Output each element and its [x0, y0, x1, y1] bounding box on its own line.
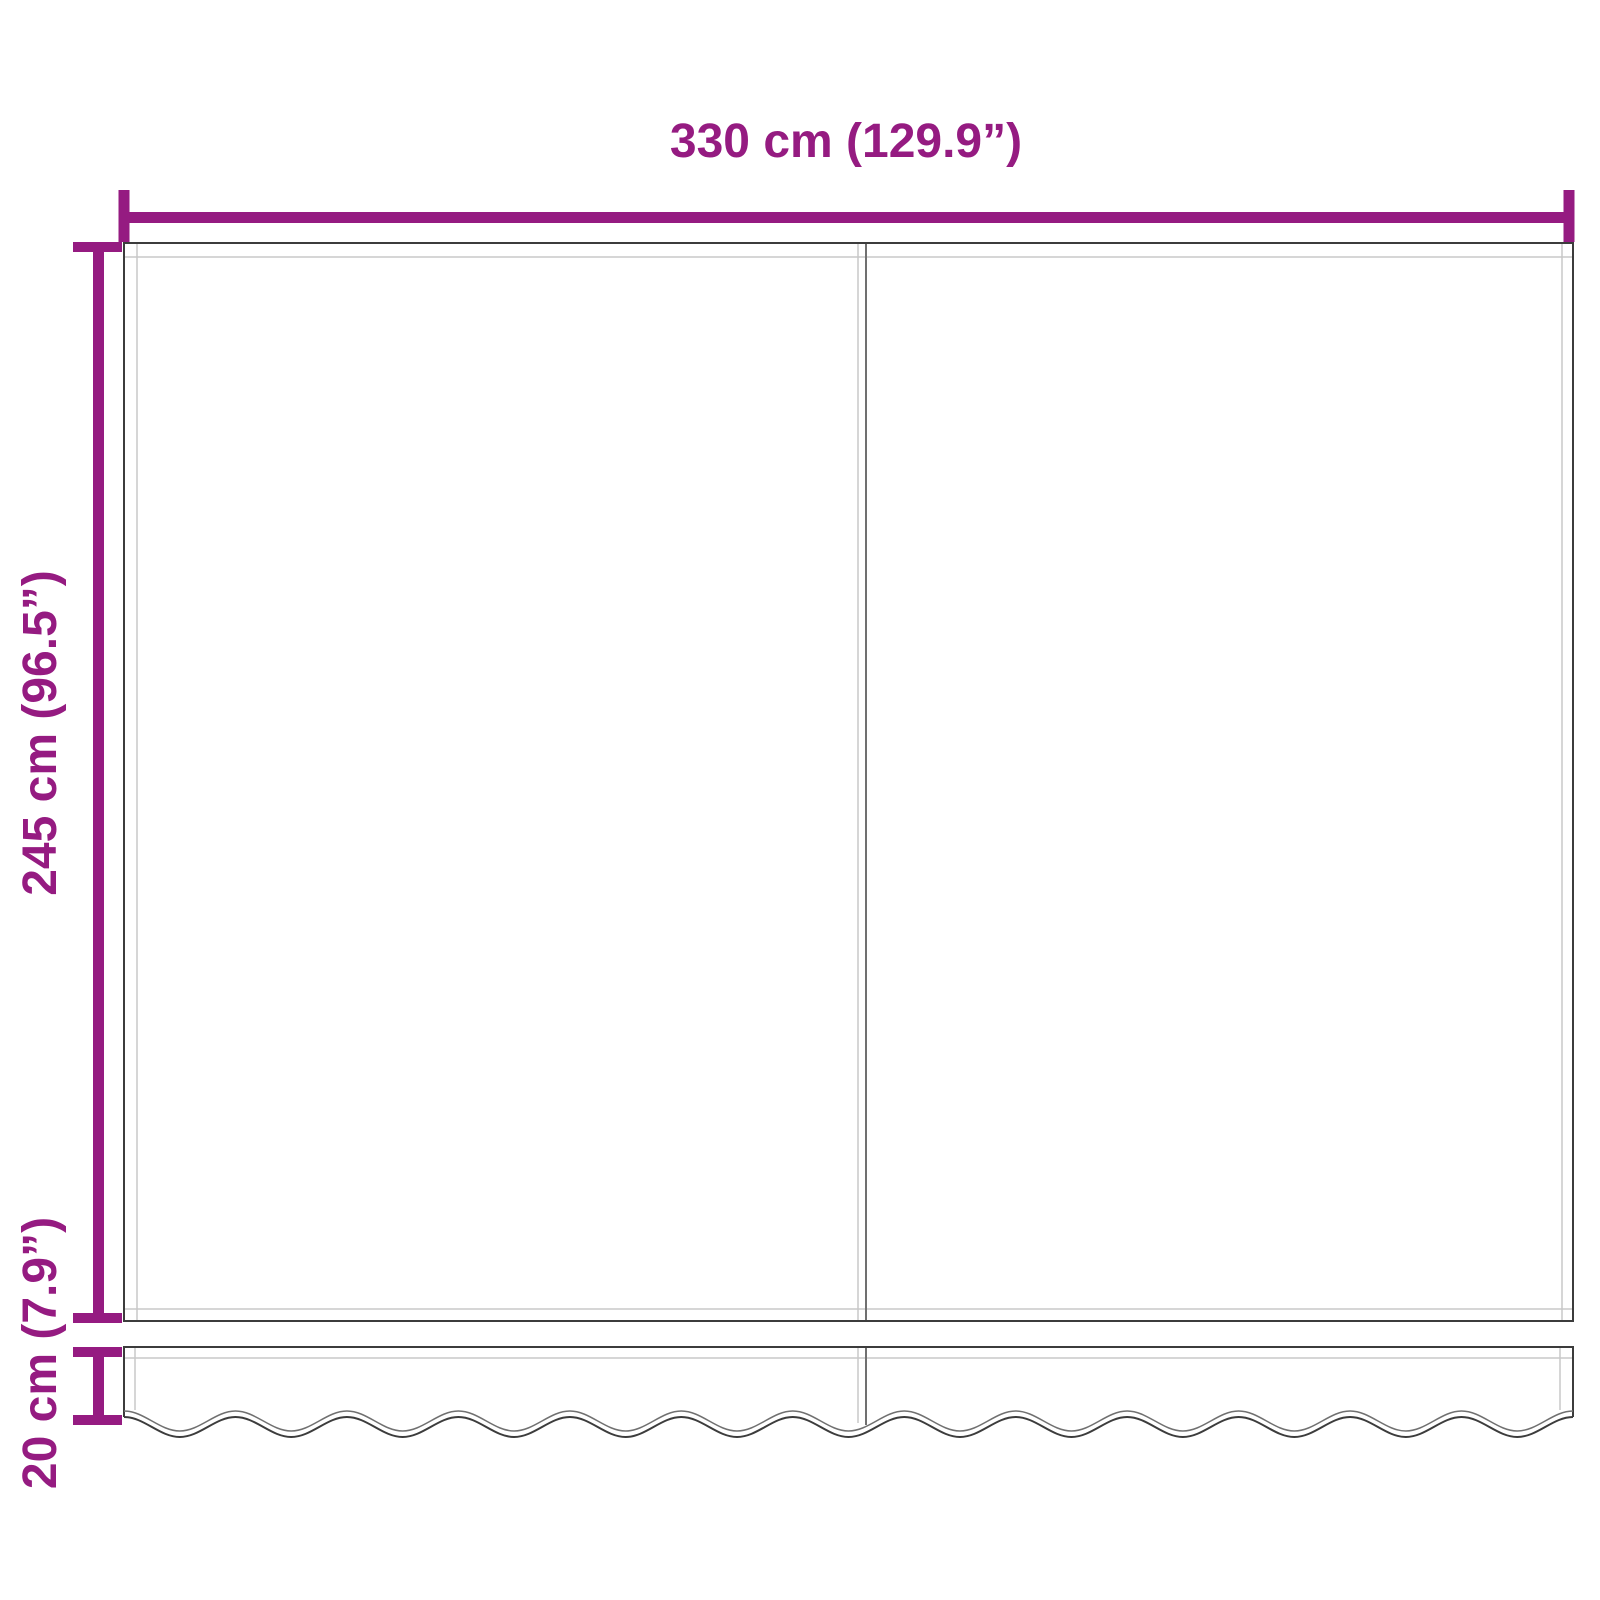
height-dimension-bottom-cap: [73, 1313, 122, 1323]
valance-dimension-top-cap: [73, 1347, 122, 1357]
fabric-panel-outline: [124, 243, 1573, 1321]
valance: [124, 1346, 1573, 1437]
valance-wave-bottom-edge: [124, 1417, 1573, 1437]
valance-dimension: [73, 1347, 122, 1425]
width-dimension-label: 330 cm (129.9”): [670, 118, 1022, 166]
valance-height-dimension-label: 20 cm (7.9”): [17, 1217, 65, 1489]
width-dimension: [119, 190, 1575, 242]
width-dimension-left-cap: [119, 190, 130, 242]
diagram-graphics: [0, 0, 1600, 1600]
valance-wave-upper-line: [124, 1411, 1573, 1431]
fabric-panel: [124, 243, 1573, 1321]
width-dimension-right-cap: [1564, 190, 1575, 242]
valance-dimension-bottom-cap: [73, 1415, 122, 1425]
height-dimension-line: [93, 247, 104, 1318]
valance-dimension-line: [93, 1352, 104, 1420]
height-dimension-top-cap: [73, 242, 122, 252]
width-dimension-line: [124, 212, 1569, 223]
awning-fabric-dimension-diagram: 330 cm (129.9”) 245 cm (96.5”) 20 cm (7.…: [0, 0, 1600, 1600]
height-dimension-label: 245 cm (96.5”): [17, 570, 65, 896]
height-dimension: [73, 242, 122, 1323]
